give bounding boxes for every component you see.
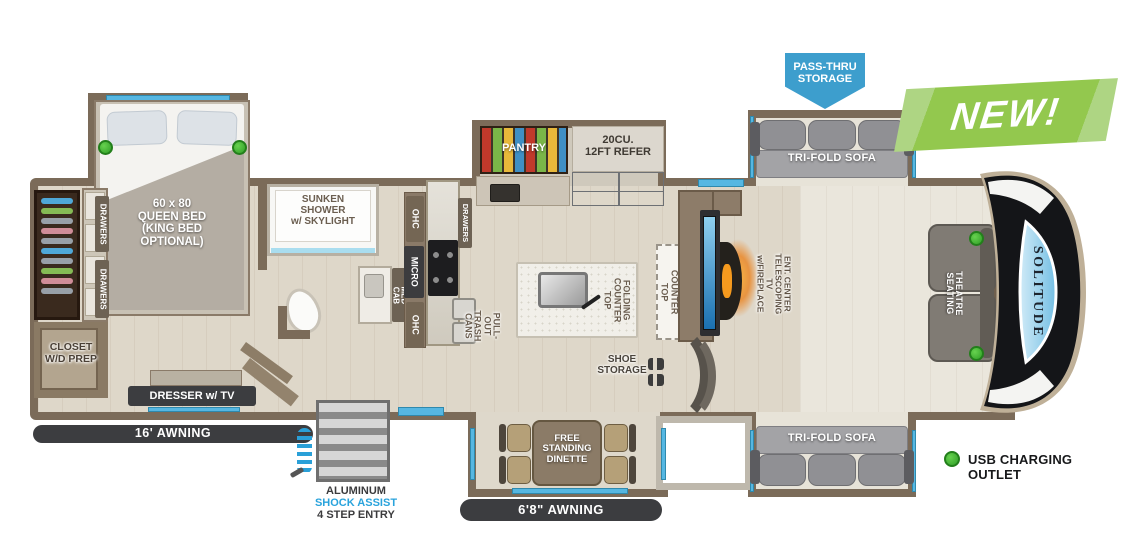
usb-legend-icon <box>944 451 960 467</box>
sofa-top-arm <box>750 122 760 156</box>
hanger <box>41 208 73 214</box>
drawers-label-top: DRAWERS <box>95 196 109 252</box>
dinette-chair <box>507 456 531 484</box>
ohc-bottom-label: OHC <box>406 302 424 348</box>
sofa-bottom-arm <box>904 450 914 484</box>
ent-center-label: ENT. CENTER TELESCOPING TV w/FIREPLACE <box>748 228 798 340</box>
bottom-wall-window <box>398 407 444 416</box>
dinette-window-bottom <box>512 488 628 494</box>
dinette-label: FREE STANDING DINETTE <box>532 434 602 465</box>
refer-label: 20CU. 12FT REFER <box>572 134 664 158</box>
new-banner-label: NEW! <box>949 90 1064 139</box>
awning-68-label: 6'8" AWNING <box>518 503 604 517</box>
steps-label-line2: SHOCK ASSIST <box>296 497 416 509</box>
hanger <box>41 248 73 254</box>
dinette-window-left <box>470 428 475 480</box>
new-banner: NEW! <box>894 78 1118 152</box>
awning-68-bar: 6'8" AWNING <box>460 499 662 521</box>
fireplace-flame <box>722 264 732 298</box>
island-sink <box>538 272 588 308</box>
entry-bench-arc-outer <box>652 330 716 422</box>
hanger <box>41 278 73 284</box>
pantry-label: PANTRY <box>478 142 570 154</box>
dresser-bar: DRESSER w/ TV <box>128 386 256 406</box>
entry-steps <box>316 400 390 482</box>
drawers-label-bottom: DRAWERS <box>95 260 109 318</box>
dinette-window-right <box>661 428 666 480</box>
bed-bath-wall <box>258 182 267 270</box>
usb-legend-label: USB CHARGING OUTLET <box>968 452 1126 482</box>
hanger <box>41 258 73 264</box>
ohc-top-label: OHC <box>406 196 424 242</box>
sofa-bottom-arm <box>750 450 760 484</box>
hanger <box>41 218 73 224</box>
tv-screen <box>703 216 716 330</box>
pass-thru-storage-label: PASS-THRU STORAGE <box>785 61 865 85</box>
front-cap: SOLITUDE <box>978 162 1096 422</box>
micro-label: MICRO <box>409 257 418 287</box>
steps-label-line1: ALUMINUM <box>296 485 416 497</box>
entry-landing <box>656 416 752 490</box>
sofa-bottom-cushion <box>808 454 856 486</box>
trash-label: PULL-OUT TRASH CANS <box>466 284 496 368</box>
sofa-top-cushion <box>808 120 856 150</box>
steps-label-line3: 4 STEP ENTRY <box>296 509 416 521</box>
dinette-chair <box>604 456 628 484</box>
usb-outlet-dot-bed-left <box>98 140 113 155</box>
vanity-sink <box>364 274 384 298</box>
dinette-chair <box>507 424 531 452</box>
dinette-chair-back <box>629 456 636 484</box>
hanger <box>41 228 73 234</box>
sofa-bottom-label: TRI-FOLD SOFA <box>760 432 904 444</box>
bed-pillow-left <box>106 110 167 146</box>
shower-label: SUNKEN SHOWER w/ SKYLIGHT <box>270 194 376 227</box>
hanger <box>41 198 73 204</box>
hanger <box>41 238 73 244</box>
sofa-top-cushion <box>758 120 806 150</box>
dresser-label: DRESSER w/ TV <box>150 390 235 402</box>
sofa-bottom-cushion <box>858 454 906 486</box>
hanger <box>41 288 73 294</box>
awning-16-label: 16' AWNING <box>135 427 211 441</box>
bed-label: 60 x 80 QUEEN BED (KING BED OPTIONAL) <box>110 198 234 249</box>
sofa-top-label: TRI-FOLD SOFA <box>760 152 904 164</box>
dinette-chair <box>604 424 628 452</box>
kitchen-drawers-label: DRAWERS <box>458 198 472 248</box>
dinette-chair-back <box>629 424 636 452</box>
brand-logo: SOLITUDE <box>1030 246 1045 338</box>
dresser-top <box>150 370 242 386</box>
floorplan-canvas: 60 x 80 QUEEN BED (KING BED OPTIONAL) DR… <box>0 0 1126 541</box>
stove <box>428 240 458 296</box>
theatre-label: THEATRE SEATING <box>938 226 968 360</box>
pass-thru-storage-banner: PASS-THRU STORAGE <box>785 53 865 109</box>
toilet-wall-h <box>278 330 310 339</box>
refrigerator <box>572 172 664 206</box>
island-label: FOLDING COUNTER TOP <box>598 264 634 336</box>
usb-outlet-dot-bed-right <box>232 140 247 155</box>
awning-16-bar: 16' AWNING <box>33 425 313 443</box>
shower-glass <box>271 248 375 253</box>
top-wall-window <box>698 179 744 187</box>
microwave: MICRO <box>404 246 424 298</box>
hanger <box>41 268 73 274</box>
griddle <box>490 184 520 202</box>
closet-label: CLOSET W/D PREP <box>26 342 116 365</box>
wardrobe <box>34 190 80 320</box>
sofa-bottom-cushion <box>758 454 806 486</box>
dresser-window <box>148 407 240 412</box>
dinette-chair-back <box>499 456 506 484</box>
bed-pillow-right <box>176 110 237 146</box>
dinette-chair-back <box>499 424 506 452</box>
